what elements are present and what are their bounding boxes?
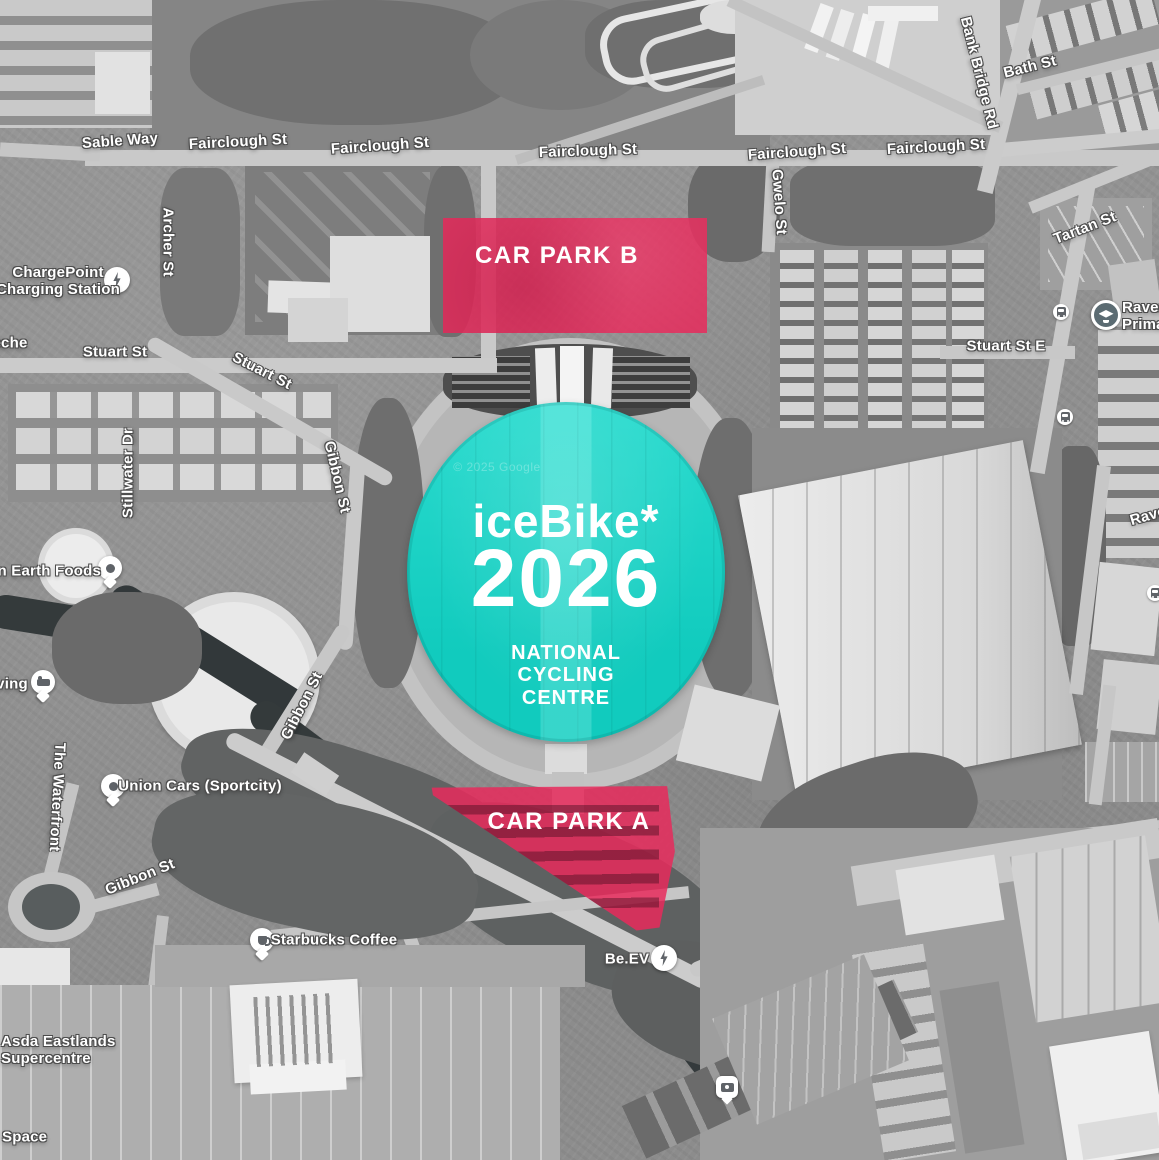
car-park-b-overlay: CAR PARK B: [443, 218, 707, 333]
terrain-feature: [253, 993, 337, 1067]
bus-stop-icon[interactable]: [1053, 304, 1069, 320]
terrain-feature: [16, 428, 331, 454]
poi-label-line: en Earth Foods: [0, 562, 101, 579]
school-icon[interactable]: [1091, 300, 1121, 330]
bus-stop-icon-glyph: [1061, 412, 1070, 422]
poi-label-line: Supercentre: [1, 1050, 116, 1067]
terrain-feature: [52, 592, 202, 704]
street-label-gwelo-st: Gwelo St: [768, 169, 790, 236]
poi-label-line: ChargePoint: [0, 264, 120, 281]
store-pin-icon-glyph: [106, 564, 115, 573]
poi-label-ving[interactable]: ving: [0, 675, 28, 692]
car-park-a-label: CAR PARK A: [488, 810, 651, 834]
poi-label-line: Raven: [1122, 299, 1159, 316]
poi-label-raven-prima[interactable]: RavenPrima: [1122, 299, 1159, 334]
poi-label-line: Prima: [1122, 316, 1159, 333]
poi-label-chargepoint-charging-station[interactable]: ChargePointCharging Station: [0, 264, 120, 299]
terrain-feature: [868, 6, 938, 21]
car-park-b-label: CAR PARK B: [475, 244, 639, 268]
poi-label-line: ving: [0, 675, 28, 692]
photo-pin-icon-glyph: [721, 1083, 734, 1092]
terrain-feature: [738, 440, 1082, 800]
school-icon-glyph: [1099, 310, 1114, 320]
terrain-feature: [545, 744, 587, 774]
terrain-feature: [824, 250, 858, 440]
street-label-stillwater-dr: Stillwater Dr: [119, 428, 136, 518]
poi-label-line: Asda Eastlands: [1, 1033, 116, 1050]
venue-event-year: 2026: [471, 542, 661, 616]
venue-overlay-velodrome: iceBike* 2026 NATIONAL CYCLING CENTRE: [407, 402, 725, 742]
satellite-map-canvas[interactable]: CAR PARK B iceBike* 2026 NATIONAL CYCLIN…: [0, 0, 1159, 1160]
venue-subtitle-line: CYCLING: [511, 664, 621, 686]
bus-stop-icon[interactable]: [1147, 585, 1159, 601]
lodging-pin-icon-glyph: [37, 679, 50, 686]
lodging-pin-icon[interactable]: [31, 670, 55, 694]
poi-label-asda-eastlands-supercentre[interactable]: Asda EastlandsSupercentre: [1, 1033, 116, 1068]
coffee-pin-icon-glyph: [258, 936, 267, 945]
terrain-feature: [868, 250, 902, 440]
poi-label-line: Union Cars (Sportcity): [118, 777, 282, 794]
street-label-sable-way: Sable Way: [81, 130, 158, 153]
street-label-fairclough-st: Fairclough St: [539, 141, 638, 162]
venue-subtitle: NATIONAL CYCLING CENTRE: [511, 642, 621, 709]
poi-label-line: Charging Station: [0, 281, 120, 298]
terrain-feature: [535, 348, 557, 409]
poi-label-line: Space: [2, 1128, 47, 1145]
poi-label-line: eche: [0, 334, 28, 351]
poi-label-line: Starbucks Coffee: [271, 931, 398, 948]
terrain-feature: [1091, 562, 1159, 656]
bus-stop-icon-glyph: [1151, 588, 1159, 598]
poi-label-starbucks-coffee[interactable]: Starbucks Coffee: [271, 931, 398, 948]
venue-subtitle-line: CENTRE: [511, 687, 621, 709]
poi-label-be-ev[interactable]: Be.EV: [605, 950, 649, 967]
terrain-feature: [790, 158, 995, 246]
bus-stop-icon-glyph: [1057, 307, 1066, 317]
poi-label-en-earth-foods[interactable]: en Earth Foods: [0, 562, 101, 579]
venue-subtitle-line: NATIONAL: [511, 642, 621, 664]
photo-pin-icon[interactable]: [716, 1076, 738, 1098]
street-label-stuart-st: Stuart St: [83, 343, 147, 360]
terrain-feature: [591, 348, 613, 409]
street-label-stuart-st-e: Stuart St E: [967, 337, 1046, 354]
terrain-feature: [155, 945, 585, 987]
terrain-feature: [16, 464, 331, 490]
store-pin-icon[interactable]: [98, 556, 122, 580]
car-hire-pin-icon-glyph: [109, 782, 118, 791]
poi-label-union-cars-sportcity[interactable]: Union Cars (Sportcity): [118, 777, 282, 794]
ev-charging-icon[interactable]: [651, 945, 677, 971]
terrain-feature: [912, 250, 946, 440]
map-attribution: © 2025 Google: [453, 460, 540, 474]
street-label-archer-st: Archer St: [159, 207, 176, 276]
ev-charging-icon-glyph: [658, 950, 670, 966]
terrain-feature: [95, 52, 150, 114]
terrain-feature: [288, 298, 348, 342]
bus-stop-icon[interactable]: [1057, 409, 1073, 425]
terrain-feature: [780, 250, 814, 440]
poi-label-line: Be.EV: [605, 950, 649, 967]
terrain-feature: [22, 884, 80, 930]
poi-label-space[interactable]: Space: [2, 1128, 47, 1145]
poi-label-eche[interactable]: eche: [0, 334, 28, 351]
terrain-feature: [560, 346, 584, 410]
terrain-feature: [1010, 835, 1159, 1022]
terrain-feature: [612, 356, 690, 408]
